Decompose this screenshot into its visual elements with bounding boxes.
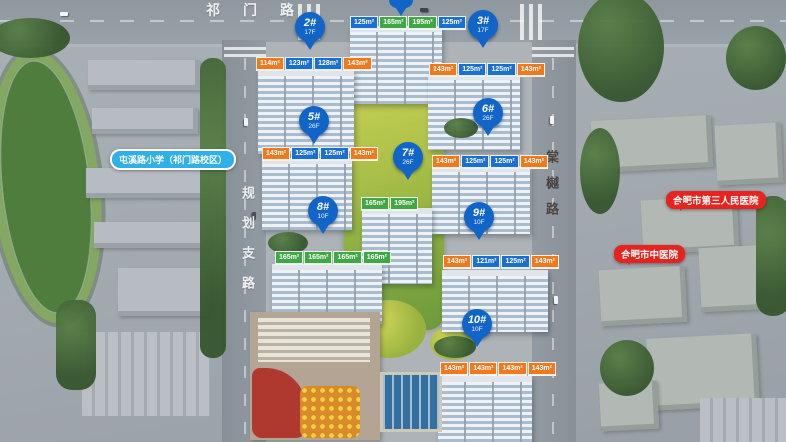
- unit-area-tag: 125m²: [320, 147, 348, 161]
- building-pin-6[interactable]: 6# 26F: [472, 98, 504, 136]
- playground: [300, 386, 360, 438]
- poi-hospital-3rd-peoples-label[interactable]: 合肥市第三人民医院: [666, 191, 766, 209]
- poi-tcm-hospital-label[interactable]: 合肥市中医院: [614, 245, 685, 263]
- unit-area-tag: 165m²: [304, 251, 332, 265]
- pin-balloon: 10# 10F: [462, 309, 492, 339]
- unit-area-tag: 195m²: [408, 16, 436, 30]
- unit-area-tag: 125m²: [291, 147, 319, 161]
- pin-building-number: 5#: [308, 112, 320, 123]
- unit-area-tag: 114m²: [256, 57, 284, 71]
- pin-balloon: 7# 26F: [393, 142, 423, 172]
- poi-school-label[interactable]: 屯溪路小学（祁门路校区）: [110, 149, 236, 170]
- pin-building-number: 7#: [402, 148, 414, 159]
- car: [550, 116, 554, 124]
- crosswalk: [520, 4, 544, 40]
- tree-grove: [600, 340, 654, 396]
- unit-tag-row-2: 114m²123m²128m²143m²: [256, 57, 372, 71]
- unit-tag-row-9: 143m²121m²125m²143m²: [443, 255, 559, 269]
- building-pin-7[interactable]: 7# 26F: [392, 142, 424, 180]
- unit-area-tag: 195m²: [390, 197, 418, 211]
- pin-tail: [303, 39, 317, 50]
- unit-area-tag: 165m²: [379, 16, 407, 30]
- pin-building-number: 8#: [317, 202, 329, 213]
- road-label-planned-road: 规划支路: [238, 186, 257, 306]
- school-building: [94, 222, 210, 248]
- hospital-building: [714, 122, 783, 185]
- pin-balloon: 5# 26F: [299, 106, 329, 136]
- pin-balloon: 8# 10F: [308, 196, 338, 226]
- pin-balloon: 2# 17F: [295, 12, 325, 42]
- parking-lot: [700, 398, 786, 442]
- pin-building-number: 2#: [304, 18, 316, 29]
- unit-area-tag: 125m²: [490, 155, 518, 169]
- tree-grove: [580, 128, 620, 214]
- pin-tail: [401, 169, 415, 180]
- unit-area-tag: 125m²: [461, 155, 489, 169]
- building-pin-5[interactable]: 5# 26F: [298, 106, 330, 144]
- unit-tag-row-6: 143m²125m²125m²143m²: [432, 155, 548, 169]
- unit-area-tag: 143m²: [520, 155, 548, 169]
- unit-tag-row-3: 143m²125m²125m²143m²: [429, 63, 545, 77]
- pin-tail: [316, 223, 330, 234]
- pin-tail: [307, 133, 321, 144]
- pin-floor-count: 17F: [477, 27, 488, 34]
- kindergarten-building: [258, 318, 370, 362]
- tree-grove: [756, 196, 786, 316]
- building-pin-partial[interactable]: [386, 0, 416, 16]
- unit-area-tag: 143m²: [531, 255, 559, 269]
- building-pin-9[interactable]: 9# 10F: [463, 202, 495, 240]
- building-pin-3[interactable]: 3# 17F: [467, 10, 499, 48]
- pin-floor-count: 26F: [308, 123, 319, 130]
- unit-area-tag: 143m²: [350, 147, 378, 161]
- unit-area-tag: 143m²: [262, 147, 290, 161]
- unit-area-tag: 125m²: [350, 16, 378, 30]
- pin-balloon: 9# 10F: [464, 202, 494, 232]
- pin-tail: [394, 5, 408, 16]
- tree-grove: [56, 300, 96, 390]
- unit-tag-row-8: 165m²165m²165m²165m²: [275, 251, 391, 265]
- tower-9: [442, 270, 548, 332]
- unit-tag-row-5: 143m²125m²125m²143m²: [262, 147, 378, 161]
- pin-tail: [470, 336, 484, 347]
- pin-tail: [472, 229, 486, 240]
- unit-area-tag: 165m²: [361, 197, 389, 211]
- hospital-building: [599, 266, 688, 326]
- car: [554, 296, 558, 304]
- tree-grove: [200, 58, 226, 358]
- school-building: [118, 268, 210, 316]
- unit-area-tag: 123m²: [285, 57, 313, 71]
- school-building: [92, 108, 198, 134]
- road-centerline: [552, 58, 554, 438]
- pin-tail: [476, 37, 490, 48]
- unit-area-tag: 143m²: [469, 362, 497, 376]
- parking-lot: [82, 332, 210, 416]
- unit-area-tag: 143m²: [443, 255, 471, 269]
- pin-building-number: 9#: [473, 208, 485, 219]
- pin-floor-count: 10F: [473, 219, 484, 226]
- unit-area-tag: 143m²: [429, 63, 457, 77]
- car: [244, 118, 248, 126]
- crosswalk: [532, 47, 574, 59]
- tree-grove: [726, 26, 786, 90]
- building-pin-10[interactable]: 10# 10F: [461, 309, 493, 347]
- pin-floor-count: 26F: [482, 115, 493, 122]
- unit-area-tag: 143m²: [528, 362, 556, 376]
- pin-building-number: 6#: [482, 104, 494, 115]
- tower-10: [438, 376, 532, 442]
- unit-tag-row-7: 165m²195m²: [361, 197, 418, 211]
- unit-area-tag: 143m²: [498, 362, 526, 376]
- pin-floor-count: 10F: [317, 213, 328, 220]
- unit-area-tag: 165m²: [333, 251, 361, 265]
- pin-building-number: 3#: [477, 16, 489, 27]
- unit-tag-row-north: 125m²165m²195m²125m²: [350, 16, 466, 30]
- pin-balloon: 6# 26F: [473, 98, 503, 128]
- school-building: [86, 168, 208, 198]
- unit-area-tag: 125m²: [501, 255, 529, 269]
- pin-building-number: 10#: [468, 315, 486, 326]
- unit-tag-row-10: 143m²143m²143m²143m²: [440, 362, 556, 376]
- pin-floor-count: 17F: [304, 29, 315, 36]
- unit-area-tag: 143m²: [343, 57, 371, 71]
- unit-area-tag: 143m²: [517, 63, 545, 77]
- pin-floor-count: 10F: [471, 326, 482, 333]
- unit-area-tag: 121m²: [472, 255, 500, 269]
- car: [60, 12, 68, 16]
- aerial-site-plan: 祁门路 规划支路 棠樾路 125m²165m²195m²125m² 114m²1…: [0, 0, 786, 442]
- pin-tail: [481, 125, 495, 136]
- unit-area-tag: 165m²: [275, 251, 303, 265]
- building-pin-2[interactable]: 2# 17F: [294, 12, 326, 50]
- tree-grove: [0, 18, 70, 58]
- unit-area-tag: 125m²: [438, 16, 466, 30]
- unit-area-tag: 143m²: [440, 362, 468, 376]
- pin-balloon: 3# 17F: [468, 10, 498, 40]
- car: [420, 8, 428, 12]
- unit-area-tag: 143m²: [432, 155, 460, 169]
- tree-grove: [578, 0, 664, 102]
- unit-area-tag: 128m²: [314, 57, 342, 71]
- unit-area-tag: 125m²: [458, 63, 486, 77]
- building-pin-8[interactable]: 8# 10F: [307, 196, 339, 234]
- unit-area-tag: 125m²: [487, 63, 515, 77]
- unit-area-tag: 165m²: [363, 251, 391, 265]
- pin-floor-count: 26F: [402, 159, 413, 166]
- swimming-pool: [380, 372, 442, 432]
- school-building: [88, 60, 200, 90]
